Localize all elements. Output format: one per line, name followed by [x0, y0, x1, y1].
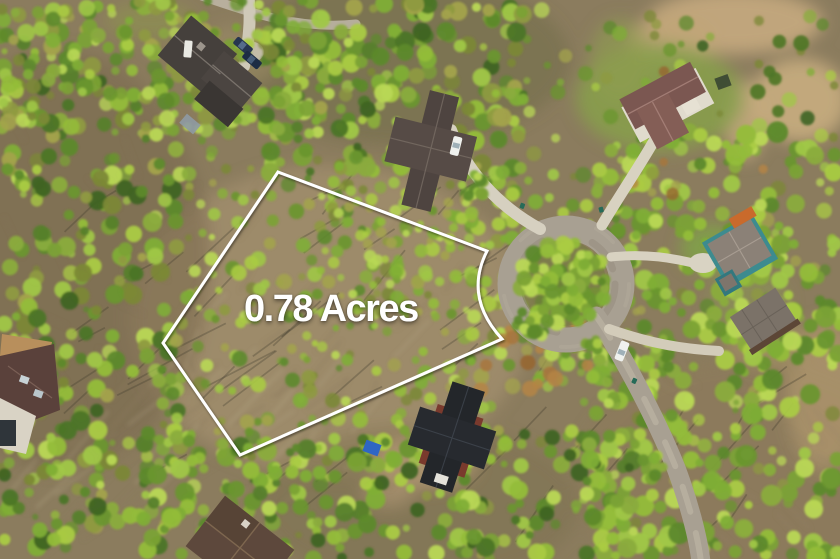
- tree: [480, 359, 492, 371]
- tree: [474, 173, 482, 181]
- tree: [103, 42, 115, 54]
- tree: [219, 305, 230, 316]
- tree: [720, 516, 734, 530]
- tree: [487, 50, 501, 64]
- tree: [150, 128, 164, 142]
- tree: [646, 489, 659, 502]
- tree: [157, 93, 174, 110]
- tree: [266, 190, 277, 201]
- tree: [183, 189, 194, 200]
- tree: [683, 230, 694, 241]
- tree: [76, 353, 87, 364]
- tree: [148, 465, 167, 484]
- tree: [168, 141, 184, 157]
- tree: [215, 384, 224, 393]
- tree: [663, 43, 676, 56]
- tree: [403, 525, 410, 532]
- tree: [444, 198, 454, 208]
- tree: [196, 305, 202, 311]
- tree: [505, 378, 521, 394]
- tree: [78, 88, 87, 97]
- tree: [764, 66, 776, 78]
- tree: [807, 68, 815, 76]
- tree: [374, 84, 393, 103]
- tree: [296, 238, 311, 253]
- tree: [185, 234, 192, 241]
- tree: [465, 327, 479, 341]
- tree: [111, 129, 118, 136]
- tree: [592, 163, 607, 178]
- tree: [583, 477, 592, 486]
- tree: [593, 354, 606, 367]
- tree: [158, 193, 172, 207]
- tree: [228, 387, 236, 395]
- tree: [221, 164, 231, 174]
- tree: [704, 455, 721, 472]
- tree: [314, 101, 327, 114]
- tree: [695, 459, 703, 467]
- tree: [403, 230, 410, 237]
- tree: [582, 360, 593, 371]
- tree: [651, 197, 664, 210]
- tree: [725, 144, 747, 166]
- tree: [353, 143, 361, 151]
- tree: [28, 309, 46, 327]
- tree: [322, 275, 335, 288]
- tree: [473, 68, 491, 86]
- tree: [122, 507, 139, 524]
- tree: [584, 508, 602, 526]
- tree: [649, 214, 663, 228]
- tree: [393, 65, 410, 82]
- tree: [713, 541, 722, 550]
- tree: [41, 148, 57, 164]
- tree: [215, 287, 222, 294]
- tree: [59, 155, 70, 166]
- tree: [14, 170, 24, 180]
- tree: [245, 427, 254, 436]
- tree: [262, 8, 271, 17]
- tree: [317, 230, 332, 245]
- tree: [749, 540, 758, 549]
- tree: [816, 18, 828, 30]
- tree: [677, 308, 686, 317]
- tree: [211, 315, 219, 323]
- tree: [540, 276, 551, 287]
- tree: [522, 381, 538, 397]
- tree: [116, 180, 133, 197]
- tree: [485, 241, 494, 250]
- tree: [142, 44, 154, 56]
- tree: [586, 370, 600, 384]
- tree: [621, 477, 635, 491]
- tree: [74, 264, 92, 282]
- tree: [435, 277, 444, 286]
- tree: [729, 469, 741, 481]
- tree: [287, 344, 297, 354]
- tree: [240, 415, 255, 430]
- tree: [59, 344, 74, 359]
- tree: [545, 193, 554, 202]
- tree: [449, 223, 458, 232]
- tree: [103, 87, 117, 101]
- tree: [665, 409, 678, 422]
- tree: [170, 334, 183, 347]
- tree: [804, 319, 818, 333]
- tree: [617, 538, 637, 558]
- tree: [347, 452, 367, 472]
- tree: [419, 347, 428, 356]
- tree: [109, 153, 120, 164]
- tree: [157, 397, 170, 410]
- tree: [136, 186, 148, 198]
- tree: [736, 125, 756, 145]
- tree: [292, 444, 300, 452]
- tree: [733, 399, 739, 405]
- tree: [165, 11, 175, 21]
- tree: [294, 134, 303, 143]
- tree: [6, 287, 20, 301]
- tree: [47, 243, 61, 257]
- tree: [528, 194, 543, 209]
- tree: [750, 424, 766, 440]
- tree: [144, 529, 161, 546]
- tree: [631, 517, 642, 528]
- tree: [295, 532, 302, 539]
- tree: [706, 136, 722, 152]
- tree: [754, 16, 764, 26]
- tree: [666, 188, 679, 201]
- tree: [415, 244, 428, 257]
- tree: [80, 227, 89, 236]
- tree: [88, 421, 107, 440]
- tree: [96, 481, 104, 489]
- tree: [105, 285, 124, 304]
- tree: [142, 86, 155, 99]
- tree: [367, 68, 375, 76]
- tree: [649, 369, 660, 380]
- tree: [375, 277, 382, 284]
- tree: [597, 277, 605, 285]
- tree: [490, 131, 508, 149]
- tree: [157, 303, 171, 317]
- tree: [578, 66, 593, 81]
- aerial-scene: [0, 0, 840, 559]
- tree: [550, 85, 565, 100]
- tree: [298, 273, 305, 280]
- tree: [466, 273, 478, 285]
- tree: [381, 255, 389, 263]
- tree: [83, 446, 102, 465]
- tree: [815, 306, 837, 328]
- tree: [584, 251, 593, 260]
- tree: [72, 511, 86, 525]
- tree: [593, 183, 603, 193]
- tree: [262, 415, 273, 426]
- tree: [507, 58, 516, 67]
- tree: [346, 186, 357, 197]
- tree: [352, 412, 368, 428]
- tree: [302, 331, 311, 340]
- tree: [712, 432, 722, 442]
- tree: [189, 265, 201, 277]
- tree: [446, 180, 455, 189]
- tree: [313, 517, 323, 527]
- tree: [421, 270, 433, 282]
- tree: [242, 462, 259, 479]
- tree: [444, 65, 457, 78]
- tree: [201, 379, 211, 389]
- tree: [771, 234, 791, 254]
- tree: [139, 29, 151, 41]
- tree: [503, 359, 515, 371]
- tree: [232, 23, 241, 32]
- tree: [45, 33, 60, 48]
- tree: [2, 163, 14, 175]
- tree: [697, 40, 708, 51]
- tree: [255, 13, 263, 21]
- tree: [493, 108, 512, 127]
- tree: [182, 167, 197, 182]
- tree: [58, 377, 69, 388]
- tree: [303, 384, 317, 398]
- tree: [449, 270, 462, 283]
- tree: [8, 236, 24, 252]
- tree: [578, 259, 590, 271]
- tree: [514, 458, 529, 473]
- tree: [341, 396, 351, 406]
- tree: [331, 351, 340, 360]
- tree: [280, 357, 289, 366]
- tree: [723, 175, 740, 192]
- tree: [341, 354, 353, 366]
- tree: [80, 487, 90, 497]
- tree: [600, 72, 612, 84]
- tree: [520, 355, 535, 370]
- tree: [539, 506, 554, 521]
- tree: [123, 285, 142, 304]
- tree: [159, 110, 175, 126]
- tree: [247, 165, 254, 172]
- tree: [267, 215, 279, 227]
- tree: [386, 238, 397, 249]
- tree: [1, 76, 18, 93]
- tree: [681, 290, 696, 305]
- tree: [816, 178, 824, 186]
- tree: [370, 457, 386, 473]
- tree: [550, 519, 560, 529]
- tree: [27, 101, 38, 112]
- tree: [612, 26, 627, 41]
- tree: [694, 280, 705, 291]
- tree: [698, 439, 712, 453]
- tree: [46, 64, 60, 78]
- tree: [366, 490, 386, 510]
- tree: [376, 227, 387, 238]
- tree: [538, 304, 550, 316]
- tree: [313, 156, 322, 165]
- tree: [159, 28, 170, 39]
- tree: [107, 4, 115, 12]
- tree: [103, 196, 122, 215]
- tree: [712, 321, 728, 337]
- tree: [401, 462, 418, 479]
- tree: [564, 449, 577, 462]
- tree: [648, 188, 657, 197]
- tree: [515, 499, 524, 508]
- tree: [1, 48, 7, 54]
- tree: [706, 306, 722, 322]
- tree: [364, 547, 374, 557]
- tree: [328, 433, 340, 445]
- tree: [92, 170, 109, 187]
- tree: [337, 274, 344, 281]
- tree: [349, 150, 363, 164]
- tree: [753, 463, 764, 474]
- tree: [777, 456, 787, 466]
- tree: [784, 290, 794, 300]
- tree: [630, 439, 640, 449]
- tree: [441, 9, 452, 20]
- tree: [119, 25, 132, 38]
- tree: [163, 174, 175, 186]
- tree: [381, 438, 390, 447]
- tree: [118, 242, 132, 256]
- tree: [593, 339, 603, 349]
- tree: [800, 111, 814, 125]
- tree: [243, 105, 251, 113]
- tree: [596, 291, 611, 306]
- tree: [138, 253, 147, 262]
- tree: [0, 114, 17, 131]
- tree: [12, 312, 20, 320]
- tree: [514, 316, 523, 325]
- tree: [591, 83, 600, 92]
- tree: [632, 231, 641, 240]
- tree: [806, 147, 824, 165]
- tree: [276, 502, 288, 514]
- tree: [46, 464, 58, 476]
- tree: [343, 217, 353, 227]
- tree: [546, 490, 561, 505]
- tree: [540, 314, 554, 328]
- tree: [261, 142, 280, 161]
- tree: [786, 195, 804, 213]
- tree: [254, 0, 264, 10]
- tree: [511, 515, 520, 524]
- tree: [636, 306, 645, 315]
- tree: [318, 193, 326, 201]
- tree: [580, 398, 588, 406]
- tree: [151, 69, 167, 85]
- tree: [366, 193, 378, 205]
- tree: [289, 204, 305, 220]
- tree: [306, 255, 317, 266]
- solar-panel: [0, 420, 16, 446]
- tree: [105, 216, 119, 230]
- tree: [534, 2, 550, 18]
- tree: [644, 10, 656, 22]
- tree: [33, 225, 49, 241]
- tree: [311, 533, 326, 548]
- tree: [782, 92, 797, 107]
- tree: [606, 532, 619, 545]
- aerial-photo: 0.78 Acres: [0, 0, 840, 559]
- tree: [592, 406, 602, 416]
- tree: [139, 348, 155, 364]
- tree: [734, 519, 753, 538]
- tree: [152, 374, 166, 388]
- tree: [51, 177, 67, 193]
- tree: [303, 198, 315, 210]
- tree: [286, 20, 300, 34]
- tree: [583, 307, 597, 321]
- tree: [264, 237, 276, 249]
- tree: [242, 378, 251, 387]
- tree: [38, 113, 50, 125]
- tree: [417, 45, 433, 61]
- tree: [730, 423, 741, 434]
- tree: [217, 438, 229, 450]
- tree: [338, 184, 344, 190]
- tree: [198, 11, 209, 22]
- tree: [521, 344, 532, 355]
- tree: [825, 406, 840, 421]
- tree: [80, 191, 92, 203]
- tree: [544, 445, 557, 458]
- tree: [374, 476, 389, 491]
- tree: [733, 363, 746, 376]
- tree: [78, 0, 95, 16]
- tree: [175, 483, 195, 503]
- tree: [547, 371, 563, 387]
- tree: [582, 437, 597, 452]
- tree: [372, 366, 382, 376]
- tree: [372, 48, 390, 66]
- tree: [32, 522, 47, 537]
- tree: [732, 407, 738, 413]
- tree: [283, 39, 295, 51]
- tree: [393, 255, 403, 265]
- tree: [814, 129, 828, 143]
- tree: [209, 179, 217, 187]
- tree: [289, 484, 300, 495]
- tree: [506, 23, 526, 43]
- tree: [465, 207, 479, 221]
- tree: [206, 146, 218, 158]
- tree: [110, 53, 123, 66]
- tree: [72, 59, 83, 70]
- tree: [825, 187, 834, 196]
- tree: [494, 347, 507, 360]
- tree: [516, 271, 531, 286]
- tree: [716, 110, 723, 117]
- tree: [26, 79, 41, 94]
- tree: [143, 213, 162, 232]
- tree: [789, 164, 803, 178]
- tree: [830, 81, 838, 89]
- tree: [694, 128, 708, 142]
- tree: [170, 430, 185, 445]
- tree: [300, 33, 311, 44]
- tree: [599, 542, 609, 552]
- tree: [526, 146, 541, 161]
- tree: [634, 428, 646, 440]
- tree: [228, 481, 245, 498]
- tree: [683, 320, 701, 338]
- tree: [647, 279, 657, 289]
- tree: [200, 359, 213, 372]
